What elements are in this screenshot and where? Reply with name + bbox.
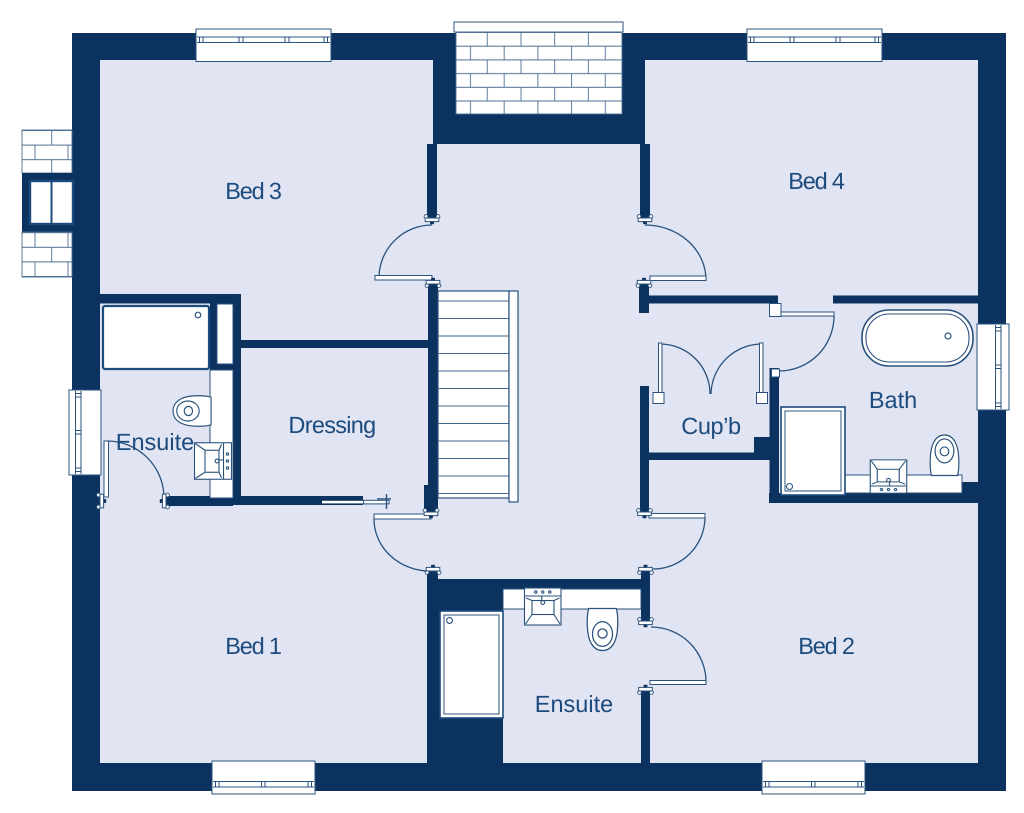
svg-text:Ensuite: Ensuite [535, 691, 613, 717]
svg-text:Bed 1: Bed 1 [225, 633, 281, 659]
svg-text:Cup’b: Cup’b [681, 413, 741, 439]
svg-text:Ensuite: Ensuite [116, 429, 194, 455]
svg-text:Bath: Bath [869, 387, 917, 413]
svg-text:Bed 4: Bed 4 [788, 168, 845, 194]
svg-text:Bed 2: Bed 2 [798, 633, 854, 659]
svg-text:Dressing: Dressing [288, 412, 375, 438]
svg-text:Bed 3: Bed 3 [225, 178, 282, 204]
